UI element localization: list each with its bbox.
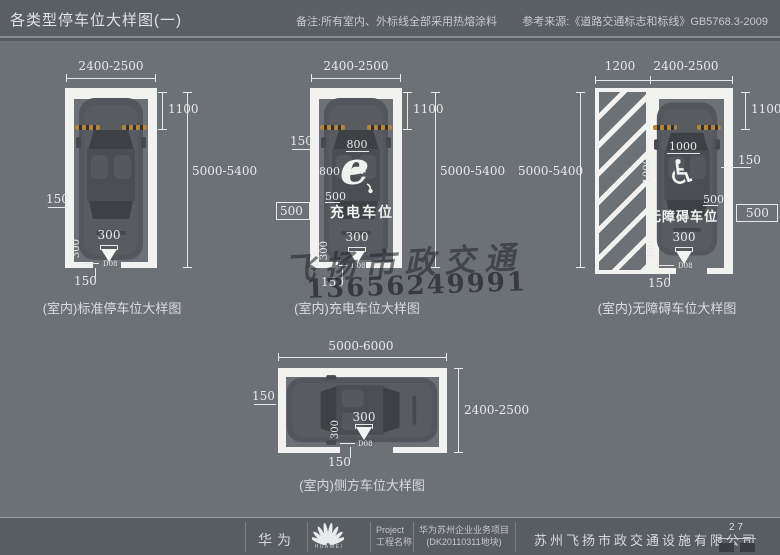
dim-hatch-w: 1200: [605, 60, 636, 72]
stall-stub-right: [707, 268, 733, 274]
project-label: Project 工程名称: [376, 524, 412, 548]
bracket: [100, 245, 118, 246]
ev-car-glyph: [349, 165, 367, 174]
stall-stub-left: [278, 447, 340, 453]
leader: [350, 447, 351, 458]
tick: [741, 129, 750, 130]
leader: [48, 207, 68, 208]
tick: [732, 76, 733, 84]
diagram-caption: (室内)标准停车位大样图: [43, 298, 182, 317]
dim-line-width-label: 150: [738, 154, 761, 166]
dim-side: 500: [746, 207, 769, 219]
title-block: 华为 HUAWEI Project 工程名称 华为苏州企业业务: [0, 517, 780, 555]
bracket: [355, 424, 373, 425]
project-code: (DK20110311地块): [426, 537, 501, 547]
dim-line-width-label: 150: [46, 193, 69, 205]
tick: [403, 92, 412, 93]
project-name: 华为苏州企业业务项目 (DK20110311地块): [419, 524, 509, 548]
dim-bottom: 150: [328, 456, 351, 468]
stall-stub-right: [393, 447, 447, 453]
dim-bottom: 150: [74, 275, 97, 287]
dim-depth: 2400-2500: [464, 404, 529, 416]
dim-line-width-label: 150: [290, 135, 313, 147]
divider: [413, 522, 414, 552]
diagram-caption: (室内)无障碍车位大样图: [598, 298, 737, 317]
leader: [254, 404, 276, 405]
huawei-logo-word: HUAWEI: [312, 544, 346, 550]
wheel-stop: [75, 125, 100, 130]
header-note: 备注:所有室内、外标线全部采用热熔涂料: [296, 13, 497, 29]
wheel-stop: [122, 125, 147, 130]
leader: [95, 268, 96, 278]
tick: [158, 92, 167, 93]
stall-line-left: [310, 88, 319, 268]
detail-ref: D08: [358, 441, 373, 448]
detail-ref: D08: [103, 261, 118, 268]
project-label-en: Project: [376, 525, 404, 535]
tick: [400, 74, 401, 82]
dim-width: 5000-6000: [328, 340, 393, 352]
tick: [183, 92, 192, 93]
header-reference: 参考来源:《道路交通标志和标线》GB5768.3-2009: [522, 13, 768, 29]
tick: [431, 92, 440, 93]
leader: [669, 274, 670, 283]
dim-width: 2400-2500: [323, 60, 388, 72]
tick: [183, 267, 192, 268]
tick: [403, 129, 412, 130]
stall-line-right: [439, 368, 447, 453]
standard-space-diagram: 2400-2500 1100: [40, 55, 255, 315]
dim-symbol-w: 1000: [669, 141, 697, 152]
stall-line-right: [724, 88, 733, 274]
tick: [576, 92, 585, 93]
stall-stub-left: [650, 268, 676, 274]
huawei-logo-icon: HUAWEI: [312, 520, 346, 550]
wheel-stop: [367, 125, 392, 130]
tick: [650, 76, 651, 84]
dim-line-length: [187, 92, 188, 268]
tick: [372, 424, 373, 429]
tick: [446, 353, 447, 361]
tick: [66, 74, 67, 82]
dim-length: 5000-5400: [518, 165, 583, 177]
dim-front: 1100: [751, 103, 780, 115]
drawing-sheet: 各类型停车位大样图(一) 备注:所有室内、外标线全部采用热熔涂料 参考来源:《道…: [0, 0, 780, 555]
header-bar: 各类型停车位大样图(一) 备注:所有室内、外标线全部采用热熔涂料 参考来源:《道…: [0, 0, 780, 38]
tick: [278, 353, 279, 361]
page-footnote-block: [740, 543, 755, 552]
dim-bottom: 150: [648, 277, 671, 289]
dim-front: 1100: [413, 103, 444, 115]
dim-line-width: [66, 78, 156, 79]
dim-line-front: [162, 92, 163, 130]
dim-arrow-w: 300: [673, 231, 696, 243]
dim-line-length: [580, 92, 581, 268]
page-title: 各类型停车位大样图(一): [10, 9, 182, 30]
divider: [370, 522, 371, 552]
tick: [158, 129, 167, 130]
stall-label: 充电车位: [330, 202, 394, 222]
bracket: [340, 443, 355, 444]
detail-ref: D08: [678, 263, 693, 270]
project-name-line1: 华为苏州企业业务项目: [419, 525, 509, 535]
dim-arrow-w: 300: [98, 229, 121, 241]
ground-arrow: [356, 427, 372, 440]
dim-side-box: [276, 202, 310, 220]
tick: [576, 267, 585, 268]
dim-width: 2400-2500: [78, 60, 143, 72]
divider: [515, 522, 516, 552]
wheel-stop: [320, 125, 345, 130]
tick: [595, 76, 596, 84]
dim-symbol-h: 1000: [643, 158, 653, 183]
dim-width: 2400-2500: [653, 60, 718, 72]
dim-line-front: [407, 92, 408, 130]
diagram-caption: (室内)侧方车位大样图: [299, 475, 425, 494]
divider: [245, 522, 246, 552]
page-number: 2 7: [729, 522, 743, 533]
stall-line-right: [148, 88, 157, 268]
project-label-zh: 工程名称: [376, 537, 412, 547]
bracket: [675, 247, 693, 248]
wheel-stop: [697, 125, 721, 130]
dim-line-width: [595, 80, 733, 81]
tick: [692, 247, 693, 252]
page-number-rule: [718, 538, 756, 539]
dim-arrow-h: 300: [72, 239, 82, 258]
dim-gap: 500: [325, 191, 346, 202]
dim-line-front: [745, 92, 746, 130]
dim-arrow-h: 300: [647, 241, 657, 260]
tick: [741, 92, 750, 93]
dim-line-depth: [458, 368, 459, 453]
dim-length: 5000-5400: [192, 165, 257, 177]
brand-name: 华为: [258, 530, 296, 550]
tick: [454, 368, 463, 369]
leader: [292, 149, 311, 150]
dim-symbol-h: 800: [319, 166, 340, 177]
parallel-space-diagram: 5000-6000 2400-2500 150: [250, 340, 540, 495]
wheelchair-icon: ♿: [667, 156, 697, 190]
tick: [117, 245, 118, 250]
dim-line-width: [278, 357, 447, 358]
page-footnote-block: [719, 543, 734, 552]
ev-plug-glyph: [366, 183, 375, 194]
dim-arrow-w: 300: [353, 411, 376, 423]
divider: [307, 522, 308, 552]
wheel-stop: [653, 125, 677, 130]
tick: [311, 74, 312, 82]
dim-arrow-h: 300: [331, 420, 341, 439]
dim-length: 5000-5400: [440, 165, 505, 177]
dim-line-width-label: 150: [252, 390, 275, 402]
leader: [721, 167, 751, 168]
bracket: [84, 263, 99, 264]
tick: [155, 74, 156, 82]
dim-front: 1100: [168, 103, 199, 115]
bracket: [659, 265, 674, 266]
stall-label: 无障碍车位: [648, 206, 718, 225]
tick: [454, 452, 463, 453]
dim-gap: 500: [703, 194, 724, 205]
accessible-space-diagram: 1200 2400-2500 500: [540, 55, 780, 315]
dim-line-width: [311, 78, 401, 79]
